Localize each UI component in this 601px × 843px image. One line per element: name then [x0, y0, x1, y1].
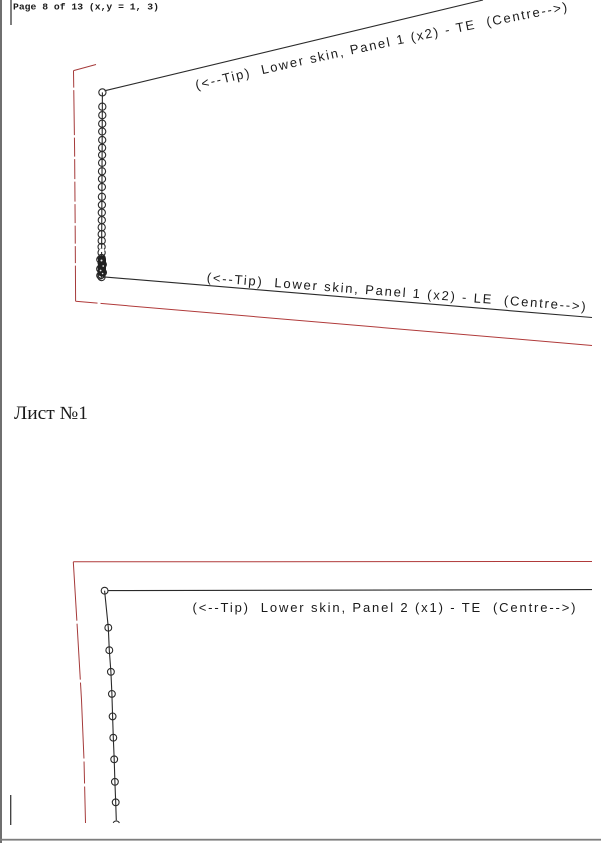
svg-text:Page 8 of 13 (x,y = 1, 3): Page 8 of 13 (x,y = 1, 3) — [13, 2, 159, 13]
svg-text:Лист №1: Лист №1 — [14, 404, 88, 424]
